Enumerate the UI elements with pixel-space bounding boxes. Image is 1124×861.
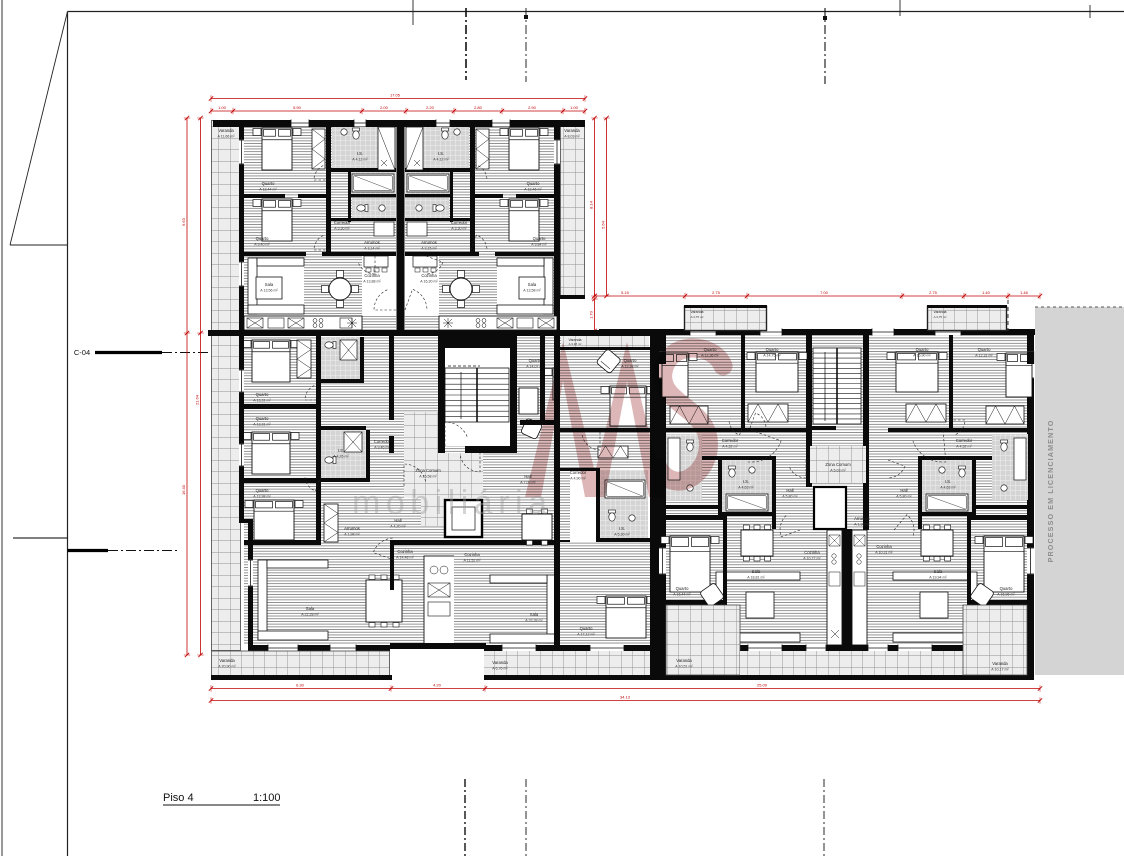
svg-text:1.46: 1.46	[1020, 290, 1029, 295]
svg-text:A 20,90 m²: A 20,90 m²	[218, 665, 236, 669]
svg-text:A 16,44 m²: A 16,44 m²	[673, 593, 691, 597]
svg-text:6.63: 6.63	[181, 217, 186, 226]
svg-text:A 6,76 m²: A 6,76 m²	[492, 667, 508, 671]
svg-text:A 14,48 m²: A 14,48 m²	[396, 556, 414, 560]
svg-text:2.75: 2.75	[712, 290, 721, 295]
svg-text:Cozinha: Cozinha	[804, 550, 820, 555]
svg-text:Zona Comum: Zona Comum	[825, 462, 851, 467]
svg-text:34.13: 34.13	[620, 695, 631, 700]
svg-text:Varanda: Varanda	[564, 128, 580, 133]
svg-text:I.S.: I.S.	[338, 448, 344, 453]
svg-text:Varanda: Varanda	[934, 310, 947, 314]
svg-text:Arrumos: Arrumos	[854, 516, 870, 521]
svg-text:A 33,38 m²: A 33,38 m²	[525, 619, 543, 623]
svg-text:Zona Comum: Zona Comum	[415, 468, 441, 473]
svg-text:A 11,66 m²: A 11,66 m²	[217, 135, 235, 139]
svg-text:Varanda: Varanda	[992, 661, 1008, 666]
svg-text:1:100: 1:100	[253, 792, 281, 804]
svg-text:Varanda: Varanda	[492, 660, 508, 665]
svg-text:mobiliária: mobiliária	[352, 484, 553, 522]
svg-text:A 19,94 m²: A 19,94 m²	[929, 576, 947, 580]
svg-text:Cozinha: Cozinha	[397, 549, 413, 554]
svg-text:A 3,14 m²: A 3,14 m²	[364, 247, 380, 251]
svg-text:16.40: 16.40	[181, 484, 186, 495]
svg-text:1.00: 1.00	[218, 105, 227, 110]
svg-text:A 13,58 m²: A 13,58 m²	[523, 289, 541, 293]
svg-text:A 5,30 m²: A 5,30 m²	[614, 533, 630, 537]
svg-text:Corredor: Corredor	[956, 438, 973, 443]
svg-text:Cozinha: Cozinha	[464, 552, 480, 557]
svg-text:Quarto: Quarto	[676, 586, 689, 591]
svg-text:A 9,84 m²: A 9,84 m²	[531, 243, 547, 247]
svg-text:5.90: 5.90	[293, 105, 302, 110]
svg-text:7.00: 7.00	[820, 290, 829, 295]
svg-text:Sala: Sala	[530, 612, 539, 617]
svg-text:A 22,28 m²: A 22,28 m²	[301, 613, 319, 617]
svg-text:A 4,26 m²: A 4,26 m²	[333, 455, 349, 459]
svg-text:Quarto: Quarto	[533, 236, 546, 241]
svg-text:Quarto: Quarto	[766, 347, 779, 352]
svg-text:Quarto: Quarto	[580, 626, 593, 631]
svg-text:A 3,18 m²: A 3,18 m²	[569, 342, 582, 346]
svg-text:A 9,40 m²: A 9,40 m²	[254, 243, 270, 247]
svg-text:A 10,17 m²: A 10,17 m²	[991, 668, 1009, 672]
svg-text:2.20: 2.20	[426, 105, 435, 110]
svg-text:2.00: 2.00	[380, 105, 389, 110]
svg-text:A 17,12 m²: A 17,12 m²	[577, 633, 595, 637]
svg-text:A 3,75 m²: A 3,75 m²	[934, 315, 947, 319]
svg-text:Sala: Sala	[265, 282, 274, 287]
svg-text:2.75: 2.75	[929, 290, 938, 295]
svg-text:Quarto: Quarto	[256, 488, 269, 493]
svg-text:I.S.: I.S.	[357, 151, 363, 156]
svg-text:Varanda: Varanda	[676, 658, 692, 663]
svg-text:Corredor: Corredor	[374, 439, 391, 444]
svg-text:Hall: Hall	[786, 488, 793, 493]
svg-text:A 4,12 m²: A 4,12 m²	[352, 158, 368, 162]
svg-text:A 3,15 m²: A 3,15 m²	[421, 247, 437, 251]
svg-text:Quarto: Quarto	[527, 181, 540, 186]
svg-text:A 13,31 m²: A 13,31 m²	[253, 399, 271, 403]
svg-text:Quarto: Quarto	[256, 416, 269, 421]
svg-text:I.S.: I.S.	[619, 526, 625, 531]
svg-text:A 16,96 m²: A 16,96 m²	[997, 593, 1015, 597]
svg-text:Sala: Sala	[752, 569, 761, 574]
svg-text:Quarto: Quarto	[262, 181, 275, 186]
svg-text:Arrumos: Arrumos	[364, 240, 380, 245]
svg-text:A 4,63 m²: A 4,63 m²	[940, 486, 956, 490]
svg-text:A 11,52 m²: A 11,52 m²	[463, 559, 481, 563]
svg-text:A 3,30 m²: A 3,30 m²	[451, 227, 467, 231]
svg-text:2.80: 2.80	[474, 105, 483, 110]
svg-text:Corredor: Corredor	[334, 220, 351, 225]
svg-text:4.20: 4.20	[433, 683, 442, 688]
svg-text:A 9,46 m²: A 9,46 m²	[374, 446, 390, 450]
svg-text:A 15,58 m²: A 15,58 m²	[419, 475, 437, 479]
svg-text:Quarto: Quarto	[916, 347, 929, 352]
svg-text:Corredor: Corredor	[451, 220, 468, 225]
svg-text:Quarto: Quarto	[256, 236, 269, 241]
svg-text:A 5,03 m²: A 5,03 m²	[830, 469, 846, 473]
svg-text:Sala: Sala	[528, 282, 537, 287]
svg-text:A 3,75 m²: A 3,75 m²	[691, 315, 704, 319]
svg-text:1.00: 1.00	[570, 105, 579, 110]
svg-text:PROCESSO EM LICENCIAMENTO: PROCESSO EM LICENCIAMENTO	[1046, 420, 1055, 563]
svg-text:Cozinha: Cozinha	[876, 544, 892, 549]
svg-text:Cozinha: Cozinha	[364, 273, 380, 278]
svg-text:Sala: Sala	[934, 569, 943, 574]
svg-text:A 10,31 m²: A 10,31 m²	[875, 551, 893, 555]
svg-text:A 13,98 m²: A 13,98 m²	[253, 495, 271, 499]
svg-text:A 18,81 m²: A 18,81 m²	[747, 576, 765, 580]
svg-text:Varanda: Varanda	[691, 310, 704, 314]
svg-text:A 4,63 m²: A 4,63 m²	[738, 486, 754, 490]
svg-text:A 13,56 m²: A 13,56 m²	[260, 289, 278, 293]
svg-text:A 13,31 m²: A 13,31 m²	[253, 423, 271, 427]
svg-text:I.S.: I.S.	[438, 151, 444, 156]
svg-text:1.70: 1.70	[589, 310, 594, 319]
svg-text:A 16,30 m²: A 16,30 m²	[420, 280, 438, 284]
svg-text:8.14: 8.14	[589, 200, 594, 209]
svg-text:Hall: Hall	[900, 488, 907, 493]
svg-text:Sala: Sala	[306, 606, 315, 611]
svg-text:A 15,90 m²: A 15,90 m²	[913, 354, 931, 358]
svg-text:Varanda: Varanda	[219, 658, 235, 663]
svg-text:A 3,30 m²: A 3,30 m²	[334, 227, 350, 231]
svg-text:I.S.: I.S.	[743, 479, 749, 484]
svg-text:A 10,51 m²: A 10,51 m²	[675, 665, 693, 669]
svg-text:I.S.: I.S.	[945, 479, 951, 484]
svg-text:A 1,98 m²: A 1,98 m²	[344, 533, 360, 537]
svg-text:A 5,80 m²: A 5,80 m²	[896, 495, 912, 499]
svg-text:Arrumos: Arrumos	[344, 526, 360, 531]
svg-text:25.00: 25.00	[757, 683, 768, 688]
svg-text:5.64: 5.64	[601, 220, 606, 229]
svg-text:Arrumos: Arrumos	[421, 240, 437, 245]
svg-text:2.90: 2.90	[528, 105, 537, 110]
svg-text:A 12,46 m²: A 12,46 m²	[524, 188, 542, 192]
svg-text:A 13,88 m²: A 13,88 m²	[363, 280, 381, 284]
svg-text:A 4,12 m²: A 4,12 m²	[433, 158, 449, 162]
svg-text:A 4,32 m²: A 4,32 m²	[956, 445, 972, 449]
svg-text:A 1,98 m²: A 1,98 m²	[854, 523, 870, 527]
svg-text:Quarto: Quarto	[1000, 586, 1013, 591]
svg-text:21.64: 21.64	[195, 394, 200, 405]
svg-text:Quarto: Quarto	[256, 392, 269, 397]
svg-text:5.15: 5.15	[621, 290, 630, 295]
svg-text:1.40: 1.40	[982, 290, 991, 295]
svg-text:A 5,80 m²: A 5,80 m²	[782, 495, 798, 499]
svg-text:A 8,03 m²: A 8,03 m²	[564, 135, 580, 139]
svg-text:A 10,77 m²: A 10,77 m²	[803, 557, 821, 561]
svg-text:Varanda: Varanda	[218, 128, 234, 133]
svg-text:A 12,31 m²: A 12,31 m²	[975, 354, 993, 358]
svg-text:A 4,20 m²: A 4,20 m²	[390, 525, 406, 529]
svg-text:C-04: C-04	[74, 348, 90, 357]
svg-text:Quarto: Quarto	[978, 347, 991, 352]
svg-text:Corredor: Corredor	[722, 438, 739, 443]
svg-text:Piso 4: Piso 4	[163, 792, 194, 804]
svg-text:A 12,44 m²: A 12,44 m²	[259, 188, 277, 192]
svg-text:6.30: 6.30	[296, 683, 305, 688]
svg-text:A 4,32 m²: A 4,32 m²	[722, 445, 738, 449]
svg-text:17.05: 17.05	[390, 93, 401, 98]
svg-text:A 14,75 m²: A 14,75 m²	[763, 354, 781, 358]
